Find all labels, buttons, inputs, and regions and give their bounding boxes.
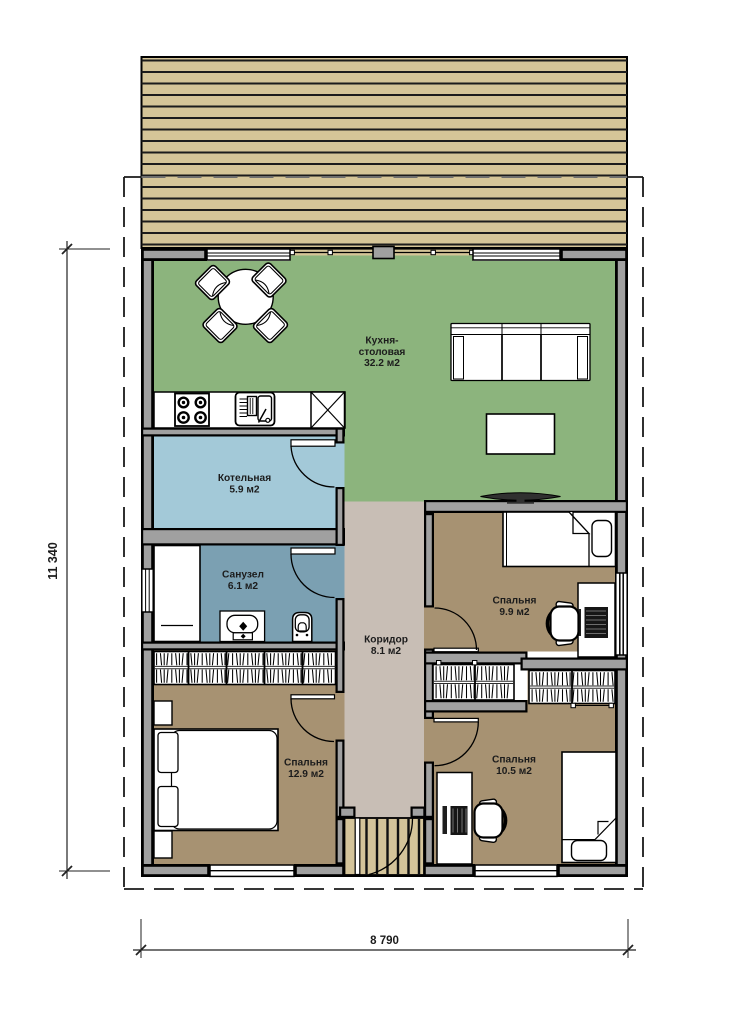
svg-text:32.2 м2: 32.2 м2 [364, 358, 400, 369]
svg-text:11 340: 11 340 [46, 542, 60, 580]
svg-text:Спальня: Спальня [492, 596, 536, 607]
svg-text:8.1 м2: 8.1 м2 [371, 646, 402, 657]
svg-text:Спальня: Спальня [284, 758, 328, 769]
svg-text:8 790: 8 790 [370, 935, 399, 947]
svg-text:6.1 м2: 6.1 м2 [228, 581, 259, 592]
svg-text:10.5 м2: 10.5 м2 [496, 766, 532, 777]
svg-text:12.9 м2: 12.9 м2 [288, 769, 324, 780]
svg-text:Коридор: Коридор [364, 635, 408, 646]
svg-text:Кухня-: Кухня- [365, 336, 398, 347]
svg-text:Котельная: Котельная [218, 473, 271, 484]
svg-text:Санузел: Санузел [222, 570, 264, 581]
svg-text:5.9 м2: 5.9 м2 [229, 485, 260, 496]
svg-text:9.9 м2: 9.9 м2 [499, 607, 530, 618]
svg-text:Спальня: Спальня [492, 755, 536, 766]
svg-text:столовая: столовая [359, 347, 406, 358]
